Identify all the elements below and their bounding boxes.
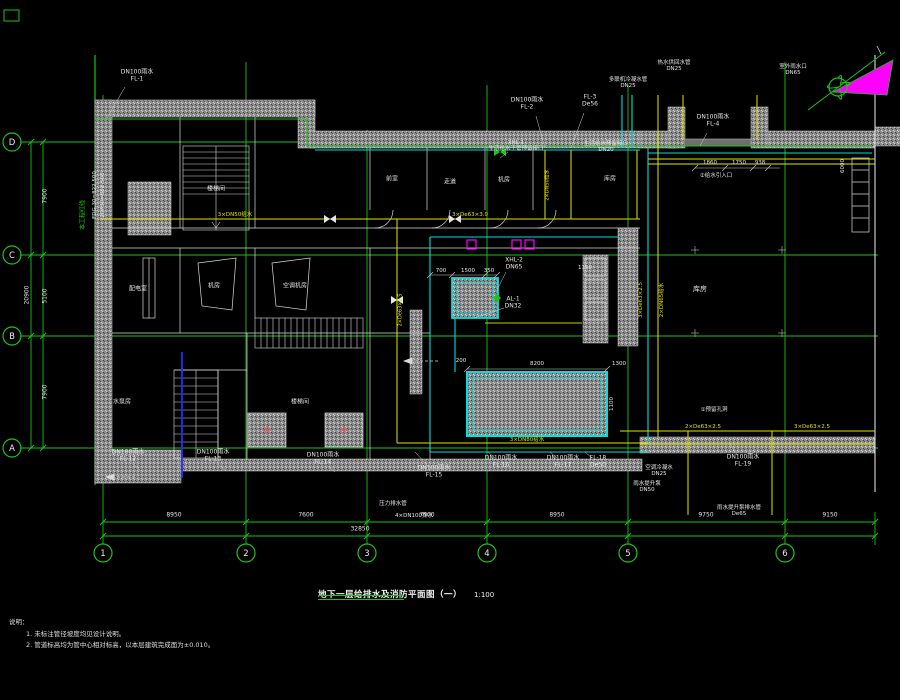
notes-heading: 说明： <box>9 617 214 628</box>
label-fl15: DN100雨水 FL-15 <box>418 465 451 478</box>
label-fl18: FL-18 De50 <box>590 455 607 468</box>
dim-left-total: 20900 <box>25 285 32 304</box>
label-note-inlet: ②给水引入口 <box>700 173 732 179</box>
label-fl14: DN100雨水 FL-14 <box>307 452 340 465</box>
notes-block: 说明： 1. 未标注管径坡度均见设计说明。 2. 管道标高均为管中心相对标高，以… <box>9 617 214 651</box>
dim-bottom-4: 9750 <box>698 513 713 520</box>
dim-left-0: 7900 <box>43 188 50 203</box>
room-ac: 空调机房 <box>283 284 307 291</box>
dim-bottom-2: 7500 <box>419 513 434 520</box>
title-underline <box>318 595 404 600</box>
room-power: 配电室 <box>129 287 147 294</box>
room-front: 前室 <box>386 177 398 184</box>
label-al1: AL-1 DN32 <box>505 296 522 309</box>
label-fl17: DN100雨水 FL-17 <box>547 455 580 468</box>
dim-bottom-1: 7600 <box>298 513 313 520</box>
room-hall: 库房 <box>693 286 707 294</box>
label-pipe-y4: 3×De63×2.5 <box>794 424 830 430</box>
label-site-red-line: 本工程红线 <box>81 200 88 230</box>
dim-white-6: 350 <box>484 268 495 274</box>
label-pipe-y1: 3×DN50给水 <box>218 212 252 218</box>
dim-white-9: 938 <box>755 160 766 166</box>
label-condensate: 多联机冷凝水管 DN25 <box>609 77 648 89</box>
room-pump: 水泵房 <box>113 400 131 407</box>
label-pipe-y3: 2×De63×2.5 <box>685 424 721 430</box>
label-hotwater: 热水供回水管 DN25 <box>657 60 690 72</box>
note-item-1: 1. 未标注管径坡度均见设计说明。 <box>26 629 214 640</box>
label-fl19: DN100雨水 FL-19 <box>727 454 760 467</box>
label-pipe-yv1: 3×De63×2.5 <box>638 282 644 318</box>
room-stair-1: 楼梯间 <box>207 187 225 194</box>
label-pipe-yv2: 2×DN65给水 <box>659 283 665 317</box>
dim-white-0: 8200 <box>530 361 544 367</box>
drawing-scale: 1:100 <box>474 591 494 599</box>
dim-white-4: 700 <box>436 268 447 274</box>
label-pipe-y5: 3×DN80给水 <box>510 437 544 443</box>
room-corridor: 走道 <box>444 180 456 187</box>
dim-white-5: 1500 <box>461 268 475 274</box>
label-pipe-yv4: 2×De63×2.5 <box>398 294 404 327</box>
label-rain-pump: 雨水提升泵 DN50 <box>633 481 661 493</box>
label-pump-drain: 雨水提升泵排水管 De65 <box>717 505 761 517</box>
dim-left-2: 7900 <box>43 384 50 399</box>
label-drain4: 4×DN100排水 <box>395 513 433 519</box>
dim-white-1: 1300 <box>612 361 626 367</box>
label-note-hole: ①预留孔洞 <box>701 407 728 413</box>
label-fl1: DN100雨水 FL-1 <box>121 69 154 82</box>
room-plant: 机房 <box>498 178 510 185</box>
label-pipe-y2: 3×De63×3.0 <box>452 212 488 218</box>
room-stair-2: 楼梯间 <box>291 400 309 407</box>
dim-bottom-5: 9150 <box>822 513 837 520</box>
label-ac-condensate: 空调冷凝水 DN25 <box>645 465 673 477</box>
dim-white-2: 200 <box>456 358 467 364</box>
dim-white-11: 6000 <box>840 159 846 173</box>
label-rain-outlet: 室外雨水口 DN65 <box>779 64 807 76</box>
label-fl12: DN100雨水 FL-12 <box>112 449 145 462</box>
room-plant-2: 机房 <box>208 284 220 291</box>
label-fl13: DN100雨水 FL-13 <box>197 449 230 462</box>
dim-white-10: 1150 <box>578 265 592 271</box>
dim-white-3: 1100 <box>609 397 615 411</box>
label-coord-1: FDG.30=822.500 <box>92 171 98 219</box>
dim-bottom-3: 8950 <box>549 513 564 520</box>
room-store-1: 库房 <box>604 177 616 184</box>
label-coord-2: 2DF30=822.500 <box>100 172 106 217</box>
dim-left-1: 5100 <box>43 288 50 303</box>
note-item-2: 2. 管道标高均为管中心相对标高，以本层建筑完成面为±0.010。 <box>26 640 214 651</box>
dim-white-7: 1860 <box>703 160 717 166</box>
dim-bottom-total: 32850 <box>350 527 369 534</box>
label-reserved-water: 生活给水预留接口 DN20 <box>584 141 628 153</box>
label-fl3: FL-3 De56 <box>582 94 598 107</box>
dim-white-8: 1750 <box>732 160 746 166</box>
label-fl16: DN100雨水 FL-16 <box>485 455 518 468</box>
dim-bottom-0: 8950 <box>166 513 181 520</box>
label-pressure-drain: 压力排水管 <box>379 501 407 507</box>
label-fl2: DN100雨水 FL-2 <box>511 97 544 110</box>
label-xhl2: XHL-2 DN65 <box>505 257 523 270</box>
cad-drawing-stage: 123456DCBA <box>0 0 900 700</box>
label-xhl1: XHL-1 生活给水干管预留接口 <box>488 140 543 152</box>
label-fl4: DN100雨水 FL-4 <box>697 114 730 127</box>
label-pipe-yv3: 2×DN50给水 <box>545 169 551 200</box>
